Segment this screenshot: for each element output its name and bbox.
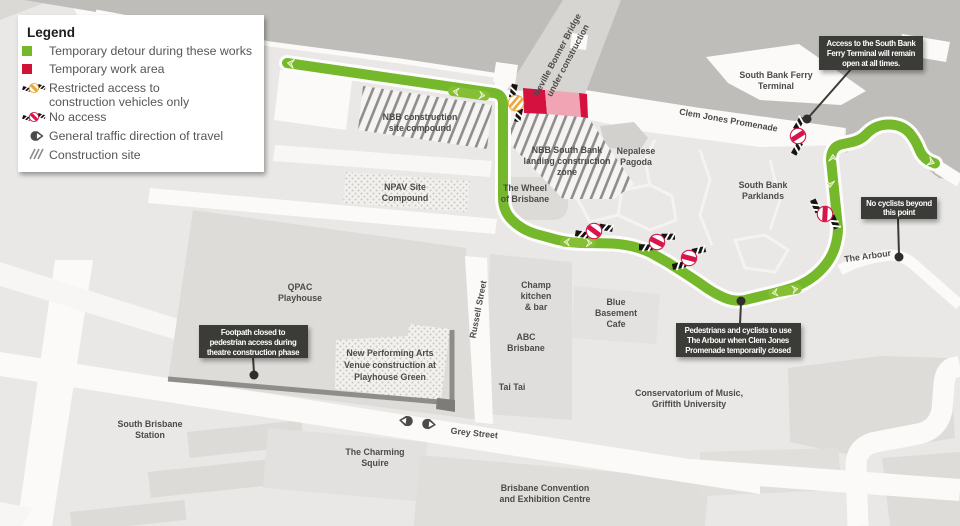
svg-text:Cafe: Cafe — [606, 319, 625, 329]
svg-text:Pedestrians and cyclists to us: Pedestrians and cyclists to use — [685, 326, 793, 335]
svg-text:The Charming: The Charming — [345, 447, 404, 457]
svg-text:& bar: & bar — [525, 302, 548, 312]
svg-text:Promenade temporarily closed: Promenade temporarily closed — [685, 346, 791, 355]
svg-text:this point: this point — [883, 208, 916, 217]
svg-text:Temporary work area: Temporary work area — [49, 62, 165, 76]
svg-text:Pagoda: Pagoda — [620, 157, 652, 167]
svg-text:Compound: Compound — [382, 193, 428, 203]
svg-text:Playhouse: Playhouse — [278, 293, 322, 303]
svg-text:construction vehicles only: construction vehicles only — [49, 95, 190, 109]
svg-text:Restricted access to: Restricted access to — [49, 81, 160, 95]
svg-text:Brisbane Convention: Brisbane Convention — [501, 483, 589, 493]
svg-text:ABC: ABC — [516, 332, 536, 342]
svg-text:Basement: Basement — [595, 308, 637, 318]
svg-text:South Bank Ferry: South Bank Ferry — [739, 70, 812, 80]
svg-text:Footpath closed to: Footpath closed to — [221, 328, 286, 337]
svg-text:Griffith University: Griffith University — [652, 399, 726, 409]
svg-text:Playhouse Green: Playhouse Green — [354, 372, 426, 382]
svg-text:General traffic direction of t: General traffic direction of travel — [49, 129, 223, 143]
svg-text:Construction site: Construction site — [49, 148, 141, 162]
svg-text:Access to the South Bank: Access to the South Bank — [827, 39, 917, 48]
svg-text:QPAC: QPAC — [288, 282, 313, 292]
svg-text:South Brisbane: South Brisbane — [117, 419, 182, 429]
svg-text:New Performing Arts: New Performing Arts — [346, 348, 433, 358]
svg-text:Venue construction at: Venue construction at — [344, 360, 436, 370]
svg-text:No cyclists beyond: No cyclists beyond — [866, 199, 932, 208]
svg-text:No access: No access — [49, 110, 106, 124]
svg-text:Temporary detour during these: Temporary detour during these works — [49, 44, 252, 58]
svg-text:Legend: Legend — [27, 25, 75, 40]
svg-text:Brisbane: Brisbane — [507, 343, 545, 353]
svg-text:The Arbour when Clem Jones: The Arbour when Clem Jones — [687, 336, 790, 345]
svg-text:NBB construction: NBB construction — [383, 112, 458, 122]
svg-text:theatre construction phase: theatre construction phase — [207, 348, 300, 357]
svg-text:of Brisbane: of Brisbane — [501, 194, 549, 204]
svg-text:The Wheel: The Wheel — [503, 183, 547, 193]
svg-text:kitchen: kitchen — [521, 291, 552, 301]
svg-text:Terminal: Terminal — [758, 81, 794, 91]
svg-text:open at all times.: open at all times. — [842, 59, 900, 68]
svg-text:Parklands: Parklands — [742, 191, 784, 201]
svg-text:Tai Tai: Tai Tai — [499, 382, 526, 392]
svg-text:South Bank: South Bank — [739, 180, 788, 190]
svg-text:pedestrian access during: pedestrian access during — [210, 338, 297, 347]
svg-text:site compound: site compound — [389, 123, 452, 133]
svg-text:NBB South Bank: NBB South Bank — [532, 145, 602, 155]
svg-text:Squire: Squire — [361, 458, 388, 468]
svg-text:Nepalese: Nepalese — [617, 146, 656, 156]
svg-text:Champ: Champ — [521, 280, 551, 290]
svg-text:landing construction: landing construction — [524, 156, 611, 166]
svg-text:zone: zone — [557, 167, 577, 177]
svg-text:Conservatorium of Music,: Conservatorium of Music, — [635, 388, 743, 398]
svg-text:Ferry Terminal will remain: Ferry Terminal will remain — [827, 49, 916, 58]
svg-text:Blue: Blue — [606, 297, 625, 307]
svg-text:Station: Station — [135, 430, 165, 440]
svg-text:and Exhibition Centre: and Exhibition Centre — [500, 494, 591, 504]
svg-text:NPAV Site: NPAV Site — [384, 182, 426, 192]
